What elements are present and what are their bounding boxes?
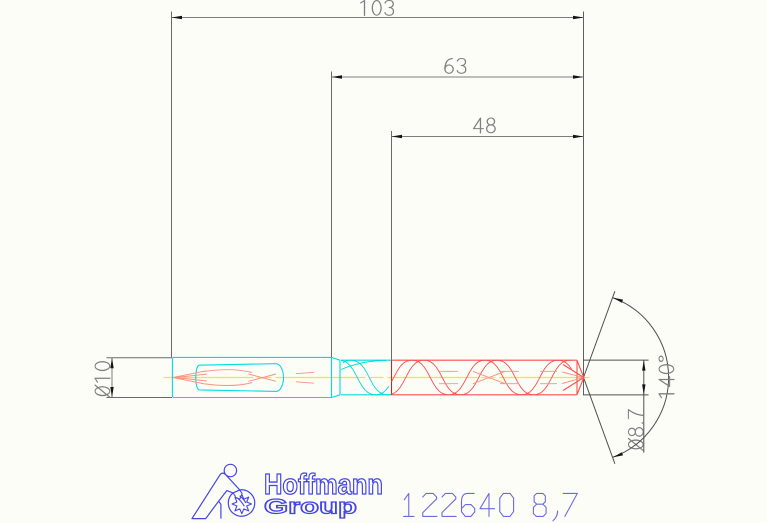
svg-text:Group: Group [264,495,357,519]
